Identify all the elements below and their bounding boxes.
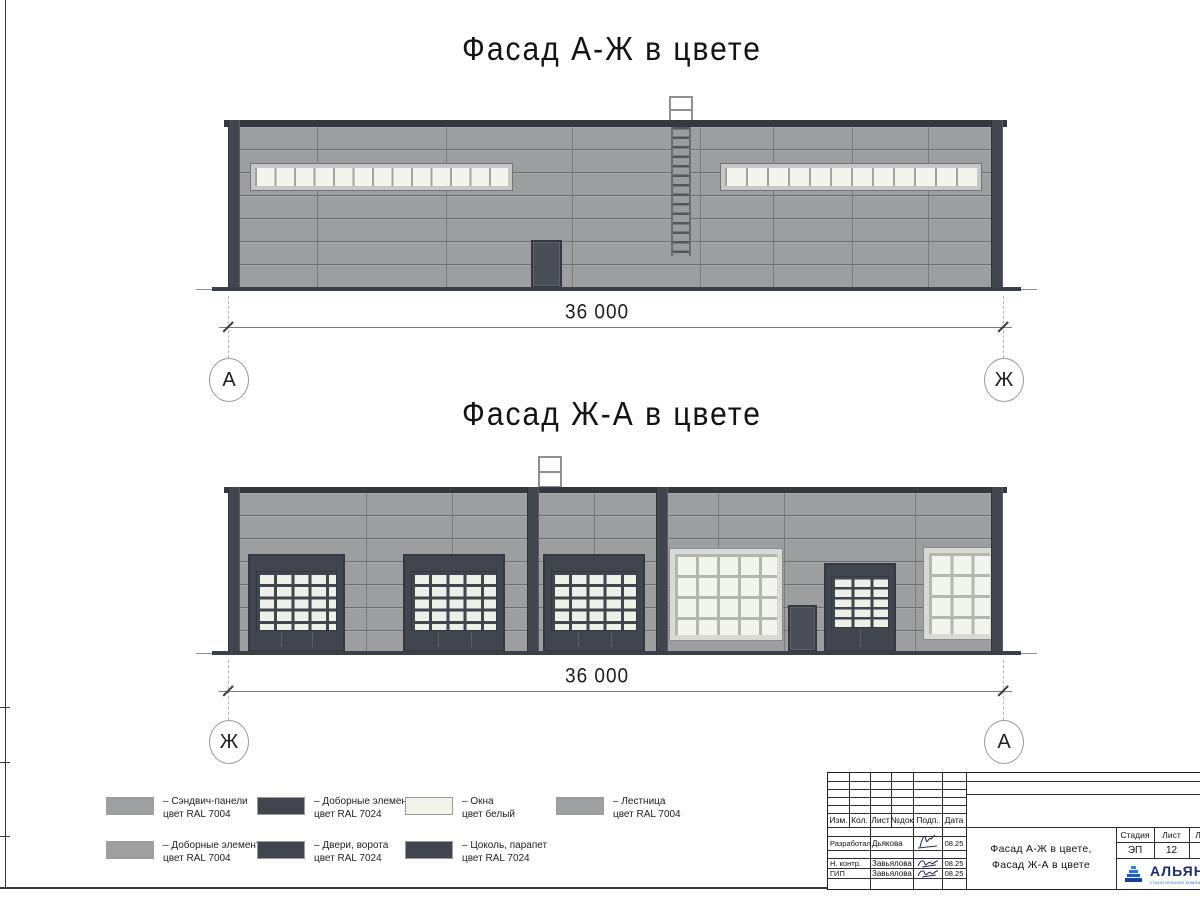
company-logo: АЛЬЯНС строительная компания xyxy=(1116,858,1200,889)
legend-item: – Окнацвет белый xyxy=(405,795,515,821)
frame-tick xyxy=(0,836,10,837)
facade-bottom-title: Фасад Ж-А в цвете xyxy=(312,396,912,434)
tb-stage-label: Стадия xyxy=(1116,827,1154,842)
panel-joint xyxy=(366,493,367,652)
axis-marker-zh: Ж xyxy=(984,358,1024,402)
panel-joint xyxy=(452,493,453,554)
large-window-1 xyxy=(669,548,783,641)
legend-swatch xyxy=(405,841,453,859)
corner-column-right xyxy=(991,120,1003,288)
legend-label: – Лестницацвет RAL 7004 xyxy=(613,795,681,821)
legend-item: – Двери, воротацвет RAL 7024 xyxy=(257,839,388,865)
entrance-door xyxy=(531,240,562,288)
panel-joint xyxy=(915,493,916,652)
legend-label: – Цоколь, парапетцвет RAL 7024 xyxy=(462,839,547,865)
axis-marker-a: А xyxy=(984,720,1024,764)
signature-gip xyxy=(916,868,940,878)
large-window-2 xyxy=(923,547,996,640)
tb-date-developer: 08.25 xyxy=(942,836,966,850)
wall-ladder-rungs xyxy=(671,127,691,256)
sheet-frame-left xyxy=(5,0,6,888)
dimension-line xyxy=(219,327,1012,328)
legend-label: – Двери, воротацвет RAL 7024 xyxy=(314,839,388,865)
legend-item: – Сэндвич-панелицвет RAL 7004 xyxy=(106,795,248,821)
garage-door-small xyxy=(824,563,896,652)
tb-name-gip: Завьялова xyxy=(870,868,915,878)
ribbon-window-right xyxy=(720,163,982,191)
legend-label: – Доборные элементыцвет RAL 7024 xyxy=(314,795,419,821)
tb-sheet-label: Лист xyxy=(1154,827,1189,842)
legend-item: – Лестницацвет RAL 7004 xyxy=(556,795,681,821)
company-name: АЛЬЯНС xyxy=(1150,863,1200,879)
roof-ladder-icon xyxy=(669,96,693,122)
mid-column xyxy=(527,487,539,652)
tb-name-ncontrol: Завьялова xyxy=(870,858,915,868)
legend-swatch xyxy=(257,797,305,815)
legend-swatch xyxy=(257,841,305,859)
tb-date-ncontrol: 08.25 xyxy=(942,858,966,868)
dimension-line xyxy=(219,691,1012,692)
tb-doc-title: Фасад А-Ж в цвете, Фасад Ж-А в цвете xyxy=(966,827,1116,889)
panel-joint xyxy=(572,127,573,287)
tb-col-ndoc: №док xyxy=(891,813,913,827)
company-subtitle: строительная компания xyxy=(1150,880,1200,885)
legend-label: – Доборные элементыцвет RAL 7004 xyxy=(163,839,268,865)
tb-date-gip: 08.25 xyxy=(942,868,966,878)
legend-item: – Доборные элементыцвет RAL 7024 xyxy=(257,795,419,821)
title-block: Изм. Кол. Лист №док Подп. Дата Разработа… xyxy=(827,772,1200,890)
legend-swatch xyxy=(106,797,154,815)
corner-column-right xyxy=(991,487,1003,652)
ribbon-window-left xyxy=(250,163,513,191)
ground-tail xyxy=(196,289,212,290)
dimension-text: 36 000 xyxy=(565,665,629,689)
tb-col-list: Лист xyxy=(870,813,891,827)
legend-item: – Доборные элементыцвет RAL 7004 xyxy=(106,839,268,865)
tb-sheets-label: Листов xyxy=(1189,827,1200,842)
facade-top-title: Фасад А-Ж в цвете xyxy=(312,31,912,69)
panel-joint xyxy=(594,493,595,554)
panel-joint xyxy=(317,127,318,287)
tb-role-gip: ГИП xyxy=(828,868,872,878)
legend-item: – Цоколь, парапетцвет RAL 7024 xyxy=(405,839,547,865)
panel-joint xyxy=(718,493,719,548)
tb-col-izm: Изм. xyxy=(828,813,849,827)
roof-ladder-icon xyxy=(538,456,562,488)
corner-column-left xyxy=(228,487,240,652)
panel-joint xyxy=(784,493,785,652)
garage-door-1 xyxy=(248,554,345,652)
frame-tick xyxy=(0,762,10,763)
corner-column-left xyxy=(228,120,240,288)
legend-label: – Сэндвич-панелицвет RAL 7004 xyxy=(163,795,248,821)
ground-line xyxy=(212,651,1021,655)
legend-swatch xyxy=(106,841,154,859)
parapet-band xyxy=(224,120,1007,127)
entrance-door xyxy=(788,605,817,652)
signature-developer xyxy=(916,831,940,851)
tb-col-podp: Подп. xyxy=(913,813,942,827)
garage-door-2 xyxy=(403,554,505,652)
signature-ncontrol xyxy=(916,858,940,868)
legend-swatch xyxy=(405,797,453,815)
ground-tail xyxy=(1021,653,1037,654)
frame-tick xyxy=(0,707,10,708)
tb-sheets-value: 2 xyxy=(1189,842,1200,858)
tb-role-ncontrol: Н. контр. xyxy=(828,858,872,868)
mid-column xyxy=(656,487,668,652)
tb-col-data: Дата xyxy=(942,813,966,827)
panel-joint xyxy=(700,127,701,287)
tb-name-developer: Дьякова xyxy=(870,836,915,850)
ground-tail xyxy=(196,653,212,654)
panel-joint xyxy=(446,127,447,287)
garage-door-3 xyxy=(543,554,645,652)
dimension-text: 36 000 xyxy=(565,301,629,325)
panel-joint xyxy=(773,127,774,287)
ground-line xyxy=(212,287,1021,291)
axis-marker-a: А xyxy=(209,358,249,402)
company-logo-icon xyxy=(1123,863,1145,885)
panel-joint xyxy=(852,127,853,287)
axis-marker-zh: Ж xyxy=(209,720,249,764)
ground-tail xyxy=(1021,289,1037,290)
tb-stage-value: ЭП xyxy=(1116,842,1154,858)
drawing-sheet: Фасад А-Ж в цвете xyxy=(0,0,1200,900)
legend-label: – Окнацвет белый xyxy=(462,795,515,821)
tb-sheet-value: 12 xyxy=(1154,842,1189,858)
tb-col-kol: Кол. xyxy=(849,813,870,827)
panel-joint xyxy=(928,127,929,287)
facade-wall xyxy=(228,127,1003,287)
tb-role-developer: Разработал xyxy=(828,836,872,850)
legend-swatch xyxy=(556,797,604,815)
